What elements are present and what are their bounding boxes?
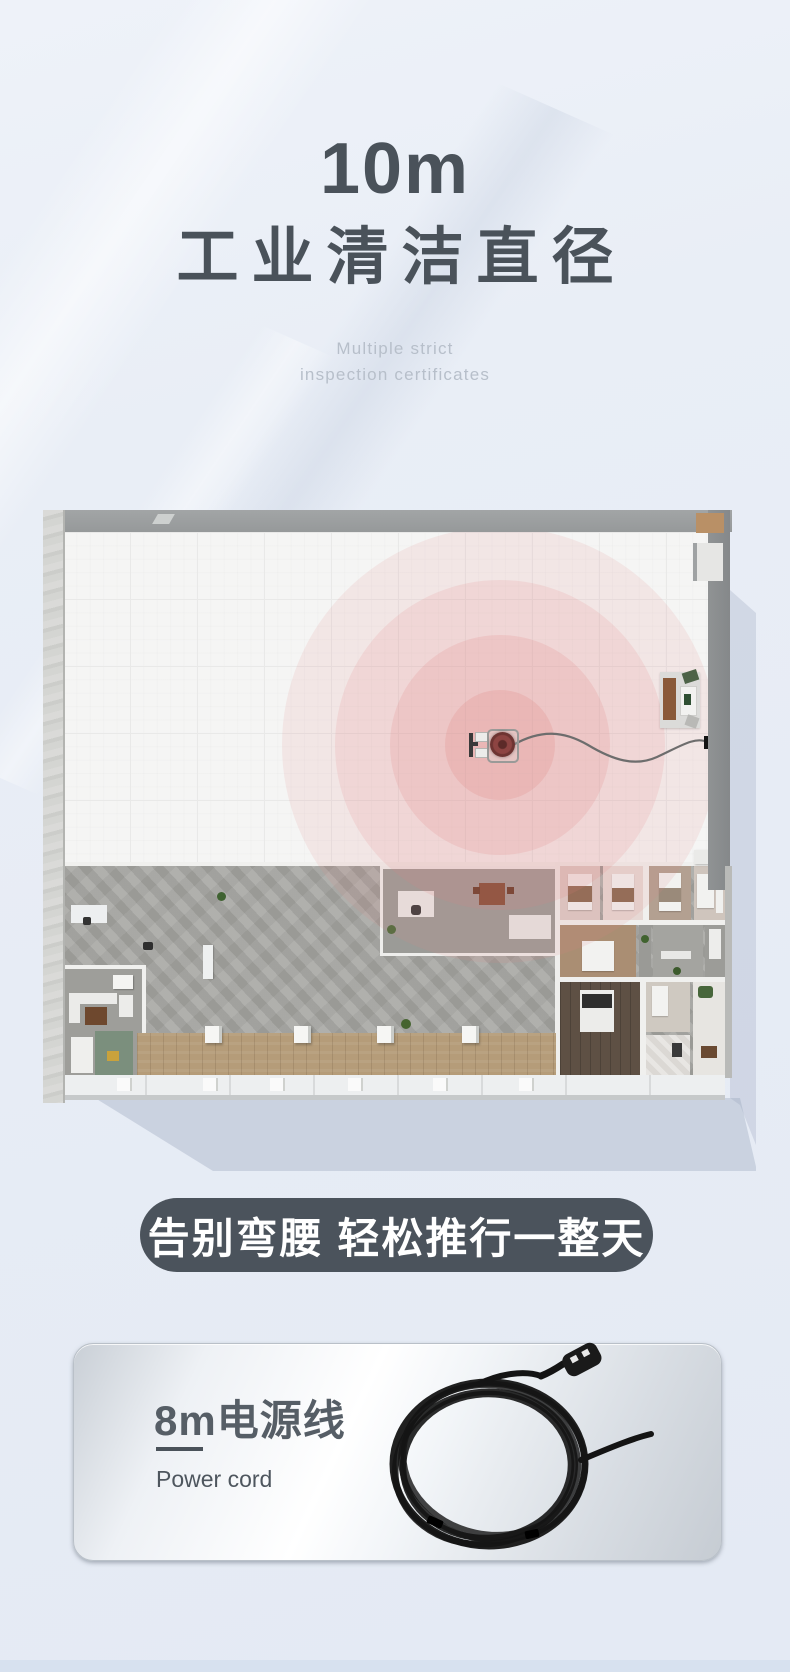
floorplan-illustration [43, 505, 756, 1175]
slogan-banner: 告别弯腰 轻松推行一整天 [140, 1198, 653, 1272]
headline-title: 工业清洁直径 [0, 206, 790, 296]
accessory-subtitle: Power cord [156, 1466, 272, 1493]
accessory-card: 8m电源线 Power cord [73, 1343, 722, 1561]
headline-metric: 10m [0, 128, 790, 210]
right-wall-lower [725, 866, 732, 1078]
scrubber-brush-disc [490, 732, 515, 757]
entry-door [696, 513, 724, 533]
entry-vestibule [693, 543, 723, 581]
tagline-line1: Multiple strict [0, 336, 790, 362]
power-cord-image [329, 1342, 669, 1562]
next-section-band [0, 1660, 790, 1672]
accessory-divider [156, 1447, 203, 1451]
scrubber-handle-stem [472, 742, 478, 746]
left-wall [43, 510, 65, 1103]
power-cord-path [43, 505, 756, 1175]
accessory-title: 8m电源线 [154, 1387, 346, 1448]
tagline: Multiple strict inspection certificates [0, 336, 790, 388]
promo-page: 10m 工业清洁直径 Multiple strict inspection ce… [0, 0, 790, 1672]
tagline-line2: inspection certificates [0, 362, 790, 388]
